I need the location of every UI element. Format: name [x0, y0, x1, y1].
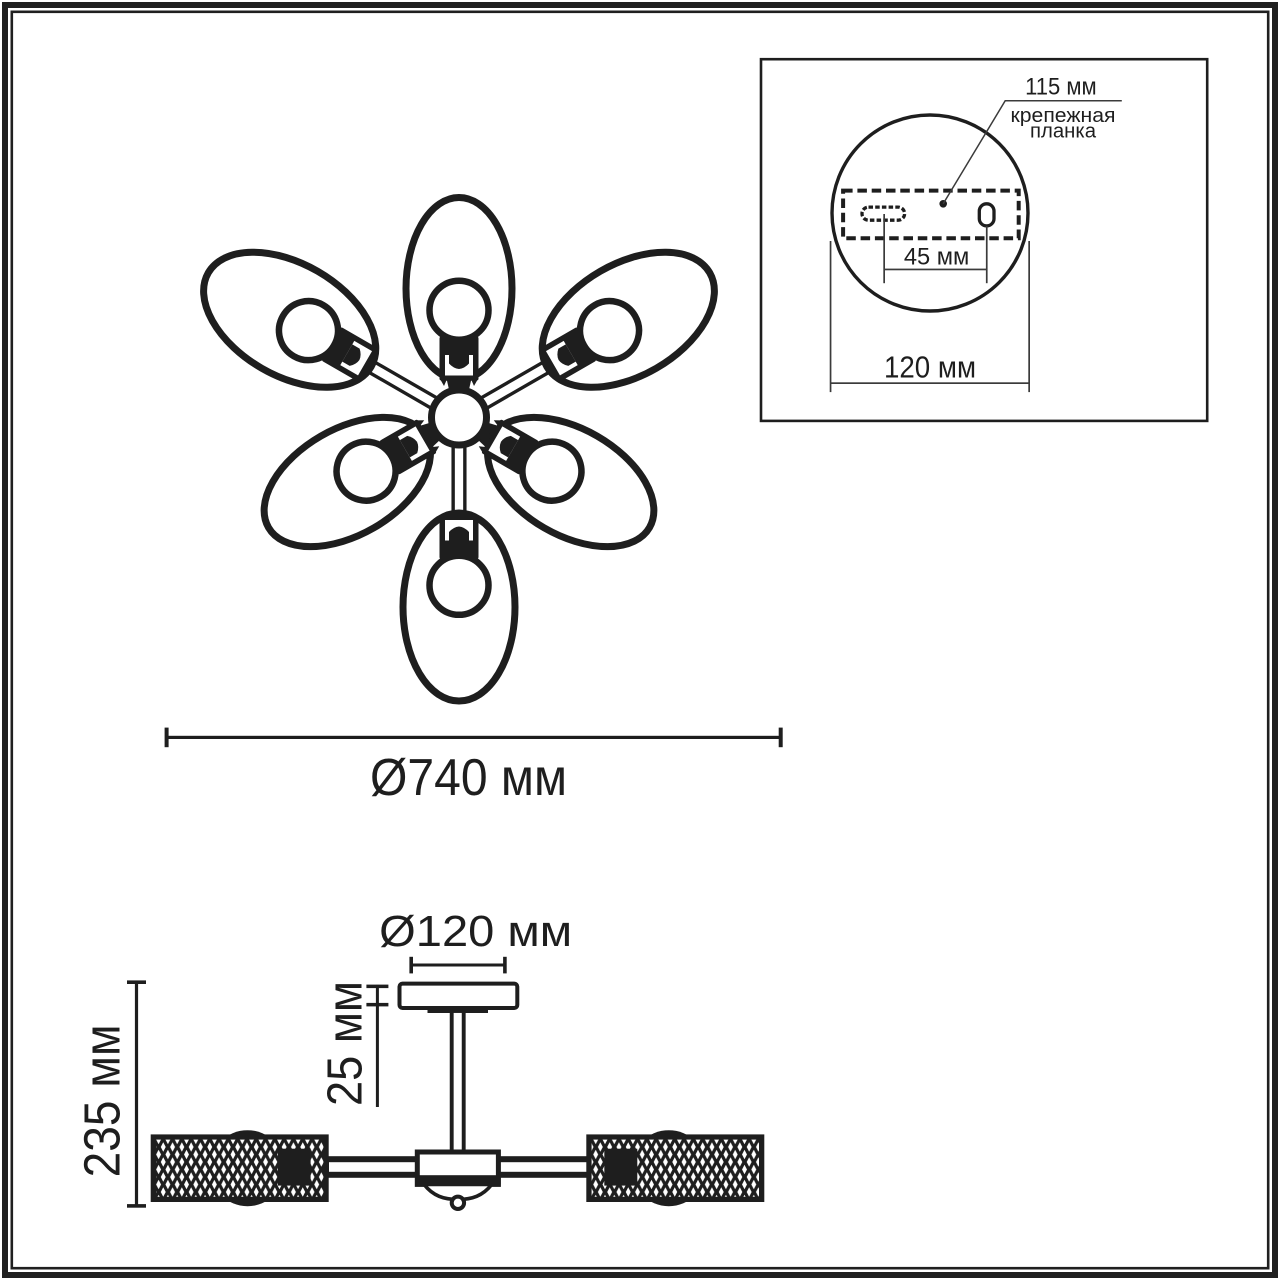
svg-text:планка: планка: [1030, 121, 1097, 143]
svg-text:115 мм: 115 мм: [1025, 74, 1097, 101]
svg-text:120 мм: 120 мм: [884, 351, 976, 385]
svg-text:Ø120 мм: Ø120 мм: [379, 907, 572, 956]
svg-text:235 мм: 235 мм: [73, 1024, 130, 1177]
svg-text:45 мм: 45 мм: [904, 243, 970, 270]
svg-text:25 мм: 25 мм: [319, 981, 373, 1106]
svg-text:Ø740 мм: Ø740 мм: [370, 749, 567, 807]
